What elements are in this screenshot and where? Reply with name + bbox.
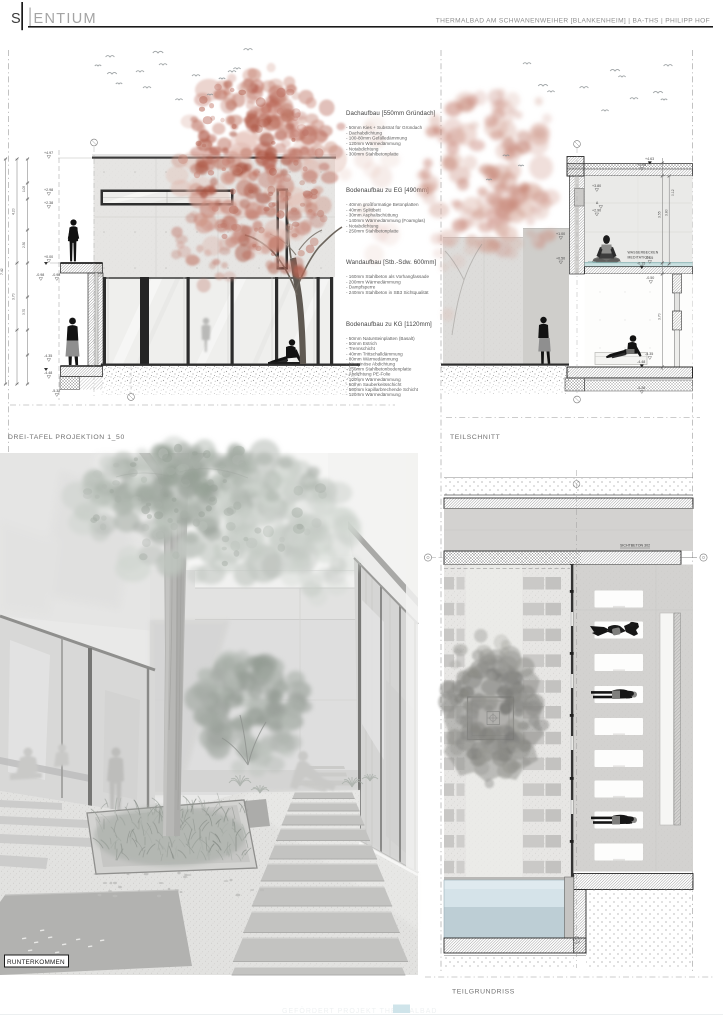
svg-text:- 40mm Splittbett: - 40mm Splittbett [346,207,381,212]
svg-text:- 200mm Wärmedämmung: - 200mm Wärmedämmung [346,279,401,284]
svg-text:- 300mm Stahlbetonplatte: - 300mm Stahlbetonplatte [346,152,399,157]
svg-text:- 120mm Wärmedämmung: - 120mm Wärmedämmung [346,141,401,146]
svg-text:-0.50: -0.50 [646,276,654,280]
svg-text:- 160mm Stahlbeton als Vorhang: - 160mm Stahlbeton als Vorhangfassade [346,274,429,279]
svg-text:-0.15: -0.15 [637,262,645,266]
svg-text:ENTIUM: ENTIUM [34,11,97,27]
svg-text:-4.48: -4.48 [44,371,52,375]
svg-text:- 250mm Stahlbetonplatte: - 250mm Stahlbetonplatte [346,229,399,234]
svg-text:- Notabdichtung: - Notabdichtung [346,146,379,151]
svg-text:- 240mm Stahlbeton in SB3 Sich: - 240mm Stahlbeton in SB3 Sichtqualität [346,290,429,295]
svg-text:+2.98: +2.98 [44,188,53,192]
svg-text:- 30mm Asphaltschüttung: - 30mm Asphaltschüttung [346,213,398,218]
svg-text:0.12: 0.12 [671,189,675,196]
svg-text:+2.90: +2.90 [592,209,601,213]
svg-text:GEFÖRDERT PROJEKT THERMALBAD: GEFÖRDERT PROJEKT THERMALBAD [282,1007,437,1015]
svg-text:3.55: 3.55 [658,211,662,218]
svg-text:2.30: 2.30 [22,242,26,248]
svg-text:+3.95: +3.95 [637,163,646,167]
svg-text:- 100-80mm Gefälledämmung: - 100-80mm Gefälledämmung [346,136,407,141]
svg-text:TEILGRUNDRISS: TEILGRUNDRISS [452,989,515,996]
svg-text:-5.32: -5.32 [52,389,60,393]
svg-text:+3.80: +3.80 [592,184,601,188]
svg-text:- Dachabdichtung: - Dachabdichtung [346,130,382,135]
svg-text:+4.97: +4.97 [44,151,53,155]
svg-text:+1.00: +1.00 [556,232,565,236]
svg-text:Wandaufbau [Stb.-Sdw. 600mm]: Wandaufbau [Stb.-Sdw. 600mm] [346,259,437,266]
svg-text:-0.98: -0.98 [36,273,44,277]
svg-text:3.70: 3.70 [12,293,16,300]
svg-text:+4.63: +4.63 [645,157,654,161]
svg-text:THERMALBAD AM SCHWANENWEIHER [: THERMALBAD AM SCHWANENWEIHER [BLANKENHEI… [436,18,710,25]
svg-text:-0.05: -0.05 [645,256,653,260]
svg-text:SICHTBETON 302: SICHTBETON 302 [620,544,650,548]
svg-text:DREI-TAFEL PROJEKTION 1_50: DREI-TAFEL PROJEKTION 1_50 [8,434,125,441]
svg-text:TEILSCHNITT: TEILSCHNITT [450,434,500,441]
svg-text:-5.26: -5.26 [637,386,645,390]
svg-text:1.05: 1.05 [22,186,26,192]
svg-text:- Dampfsperre: - Dampfsperre [346,285,376,290]
svg-text:- 120mm Wärmedämmung: - 120mm Wärmedämmung [346,392,401,397]
svg-text:Dachaufbau [550mm Gründach]: Dachaufbau [550mm Gründach] [346,110,436,117]
svg-text:- 40mm großformatige Betonplat: - 40mm großformatige Betonplatten [346,202,419,207]
svg-text:RUNTERKOMMEN: RUNTERKOMMEN [7,959,65,966]
svg-text:+2.38: +2.38 [44,201,53,205]
svg-text:-4.35: -4.35 [44,354,52,358]
svg-text:Bodenaufbau zu KG [1120mm]: Bodenaufbau zu KG [1120mm] [346,321,432,328]
svg-text:Bodenaufbau zu EG [490mm]: Bodenaufbau zu EG [490mm] [346,187,429,194]
svg-text:-4.48: -4.48 [637,360,645,364]
svg-text:3.80: 3.80 [664,209,668,216]
svg-text:- 50mm Kies + Substrat für Grü: - 50mm Kies + Substrat für Gründach [346,125,423,130]
svg-text:- Notabdichtung: - Notabdichtung [346,223,379,228]
svg-text:WASSERBECKEN: WASSERBECKEN [628,251,659,255]
svg-text:+0.00: +0.00 [44,255,53,259]
svg-text:-0.98: -0.98 [52,273,60,277]
svg-text:+0.50: +0.50 [556,257,565,261]
svg-text:-4.35: -4.35 [645,352,653,356]
svg-text:S: S [11,11,21,27]
svg-text:- 140mm Wärmedämmung (Foamglas: - 140mm Wärmedämmung (Foamglas) [346,218,426,223]
svg-text:7.42: 7.42 [0,268,4,275]
svg-text:4.20: 4.20 [12,208,16,215]
svg-text:3.70: 3.70 [22,309,26,315]
svg-text:3.70: 3.70 [658,313,662,320]
